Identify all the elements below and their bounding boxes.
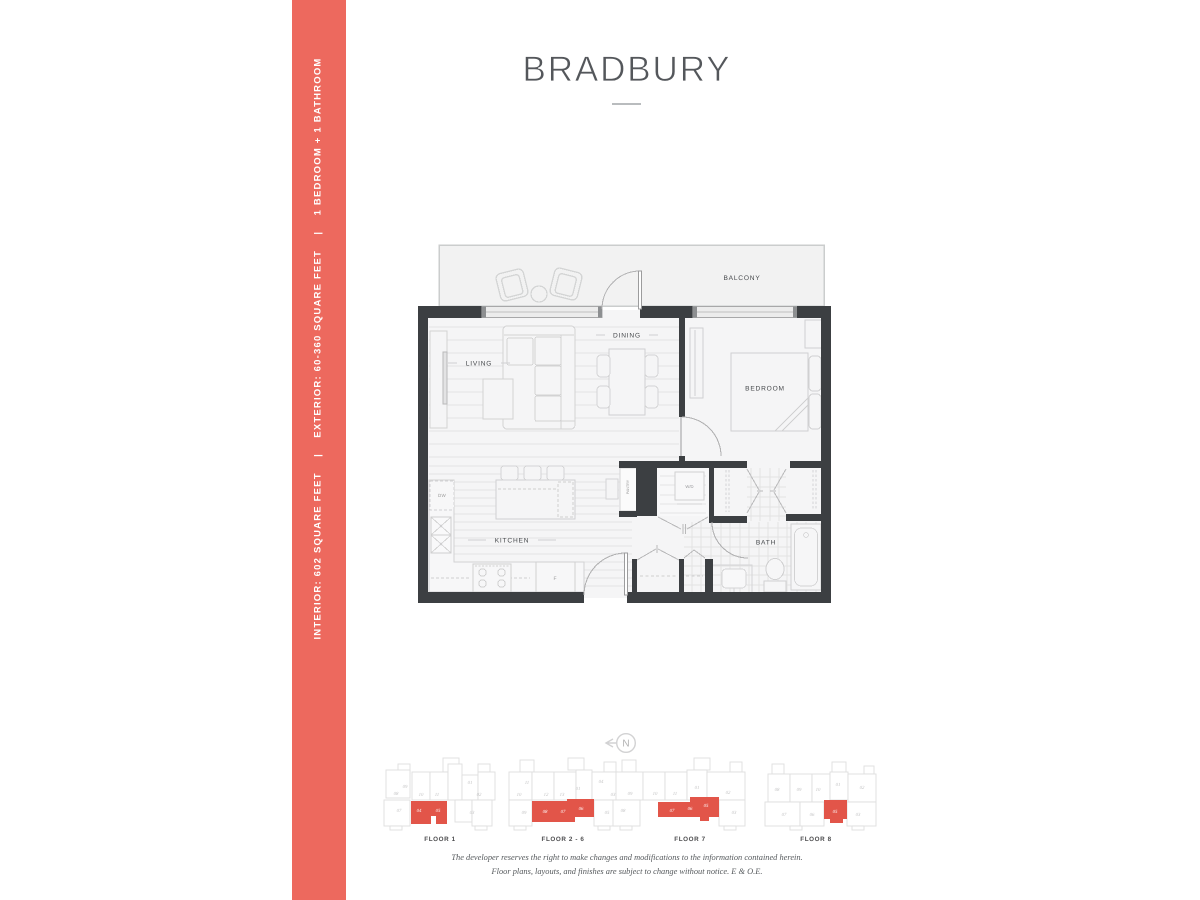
svg-text:05: 05	[704, 803, 709, 809]
svg-text:06: 06	[810, 812, 815, 818]
svg-text:08: 08	[394, 791, 399, 797]
svg-text:08: 08	[543, 809, 548, 815]
svg-text:03: 03	[611, 792, 616, 798]
svg-text:01: 01	[836, 782, 841, 788]
svg-text:FLOOR 8: FLOOR 8	[800, 836, 832, 843]
svg-text:05: 05	[436, 808, 441, 814]
svg-text:08: 08	[775, 787, 780, 793]
svg-text:N: N	[622, 739, 629, 750]
svg-text:02: 02	[860, 785, 865, 791]
svg-text:DW: DW	[438, 493, 447, 498]
svg-text:07: 07	[670, 808, 675, 814]
svg-text:01: 01	[695, 785, 700, 791]
svg-text:09: 09	[797, 787, 802, 793]
svg-text:BALCONY: BALCONY	[723, 275, 760, 282]
svg-text:10: 10	[816, 787, 821, 793]
svg-text:11: 11	[673, 791, 677, 797]
svg-text:02: 02	[726, 790, 731, 796]
svg-text:FLOOR 2 - 6: FLOOR 2 - 6	[542, 836, 585, 843]
svg-text:09: 09	[403, 784, 408, 790]
svg-text:01: 01	[576, 786, 581, 792]
svg-text:01: 01	[468, 780, 473, 786]
svg-text:DINING: DINING	[613, 333, 641, 340]
svg-text:05: 05	[833, 809, 838, 815]
svg-text:11: 11	[435, 792, 439, 798]
svg-text:09: 09	[628, 791, 633, 797]
svg-text:FLOOR 7: FLOOR 7	[674, 836, 706, 843]
svg-text:07: 07	[561, 809, 566, 815]
svg-text:02: 02	[477, 792, 482, 798]
svg-text:10: 10	[419, 792, 424, 798]
svg-text:06: 06	[579, 806, 584, 812]
svg-text:05: 05	[605, 810, 610, 816]
svg-text:12: 12	[544, 792, 549, 798]
svg-text:LIVING: LIVING	[466, 361, 492, 368]
svg-text:10: 10	[517, 792, 522, 798]
svg-text:04: 04	[599, 779, 604, 785]
svg-text:BATH: BATH	[756, 540, 776, 547]
svg-text:10: 10	[653, 791, 658, 797]
svg-text:PANTRY: PANTRY	[626, 479, 630, 494]
svg-text:04: 04	[417, 808, 422, 814]
svg-text:06: 06	[688, 806, 693, 812]
svg-text:07: 07	[397, 808, 402, 814]
svg-text:11: 11	[525, 780, 529, 786]
svg-text:07: 07	[782, 812, 787, 818]
svg-text:08: 08	[621, 808, 626, 814]
svg-text:03: 03	[470, 810, 475, 816]
svg-text:W/D: W/D	[685, 484, 693, 489]
svg-text:03: 03	[856, 812, 861, 818]
svg-text:09: 09	[522, 810, 527, 816]
svg-text:13: 13	[560, 792, 565, 798]
svg-text:KITCHEN: KITCHEN	[495, 538, 530, 545]
svg-text:03: 03	[732, 810, 737, 816]
svg-text:FLOOR 1: FLOOR 1	[424, 836, 456, 843]
svg-text:F: F	[553, 576, 556, 582]
svg-text:BEDROOM: BEDROOM	[745, 386, 785, 393]
